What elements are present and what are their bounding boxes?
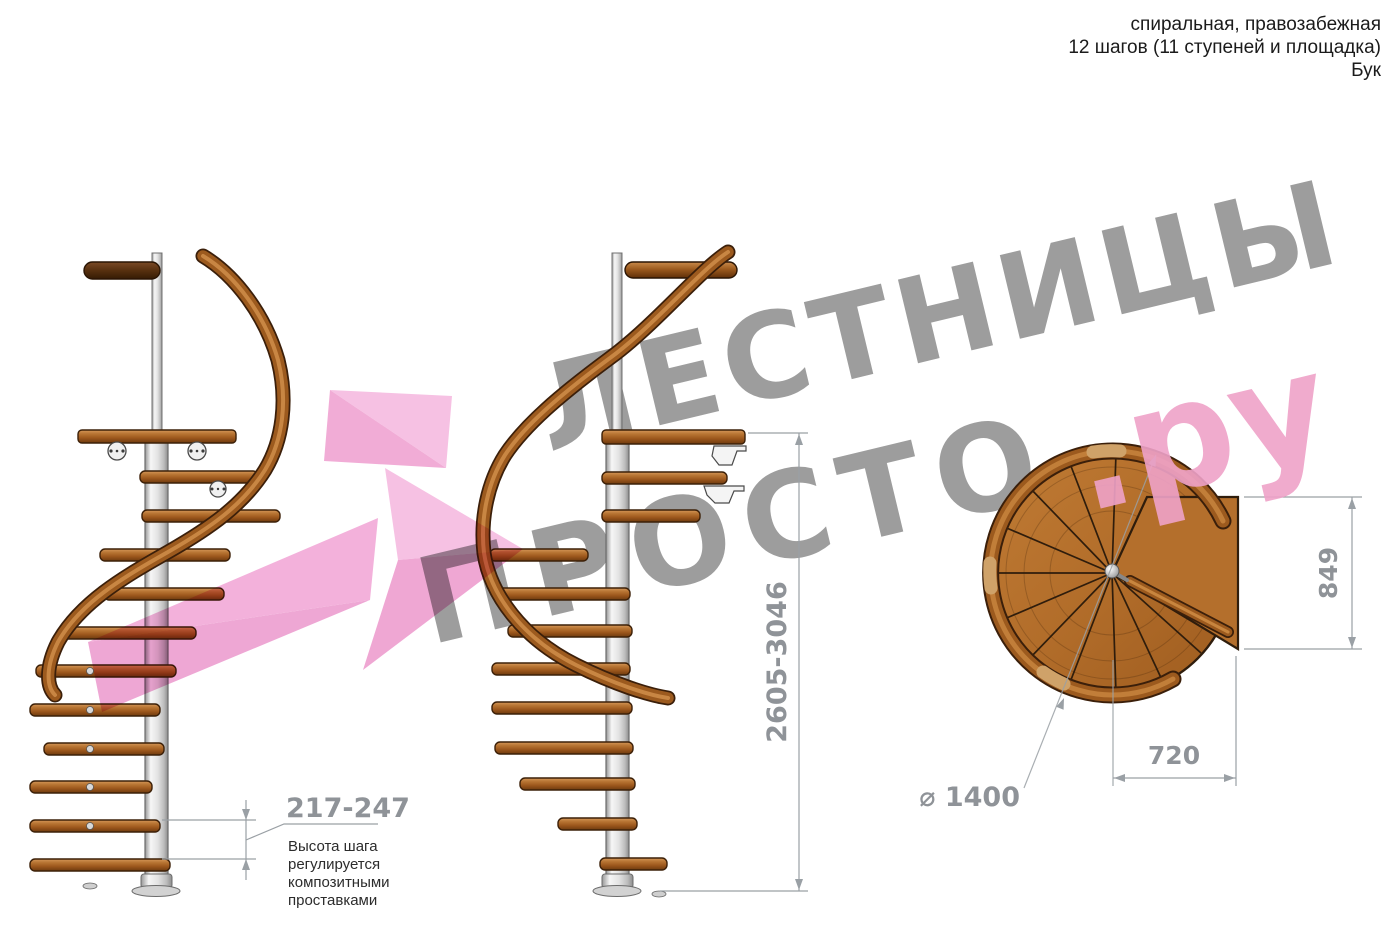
drawing-page: ЛЕСТНИЦЫ ПРОСТО	[0, 0, 1400, 930]
step	[558, 818, 637, 830]
step	[602, 510, 700, 522]
total-height-value: 2605-3046	[762, 581, 793, 743]
landing-platform	[602, 430, 745, 444]
header-info: спиральная, правозабежная 12 шагов (11 с…	[1068, 14, 1381, 81]
step	[30, 859, 170, 871]
landing-platform	[78, 430, 236, 443]
railing-balusters-left	[100, 280, 142, 431]
diameter-value: ⌀ 1400	[919, 782, 1020, 813]
note-line: Высота шага	[288, 838, 378, 855]
landing-width-value: 720	[1148, 741, 1200, 770]
dimension-landing-depth: 849	[1244, 497, 1362, 649]
left-elevation-view	[30, 253, 283, 897]
note-line: проставками	[288, 892, 377, 909]
baluster-foot	[652, 891, 666, 897]
pole-base-flange	[132, 886, 180, 897]
dimension-step-height: 217-247 Высота шага регулируется компози…	[162, 793, 410, 909]
landing-depth-value: 849	[1314, 547, 1343, 599]
step	[30, 820, 160, 832]
step-height-note: Высота шага регулируется композитными пр…	[288, 838, 390, 909]
step	[495, 742, 633, 754]
step	[602, 472, 727, 484]
header-material-line: Бук	[1351, 60, 1382, 81]
step	[492, 702, 632, 714]
railing-post	[152, 253, 162, 435]
railing-top-rail	[84, 262, 160, 279]
header-type-line: спиральная, правозабежная	[1131, 14, 1381, 35]
technical-drawing: ЛЕСТНИЦЫ ПРОСТО	[0, 0, 1400, 930]
step	[140, 471, 258, 483]
note-line: регулируется	[288, 856, 380, 873]
baluster-foot	[83, 883, 97, 889]
step	[30, 704, 160, 716]
step-height-value: 217-247	[286, 793, 410, 824]
step	[44, 743, 164, 755]
step	[492, 588, 630, 600]
rail-connector	[990, 563, 991, 588]
note-line: композитными	[288, 874, 390, 891]
pole-base-flange	[593, 886, 641, 897]
step	[520, 778, 635, 790]
header-steps-line: 12 шагов (11 ступеней и площадка)	[1068, 37, 1381, 58]
watermark-word-domain: .ру	[1054, 318, 1346, 546]
